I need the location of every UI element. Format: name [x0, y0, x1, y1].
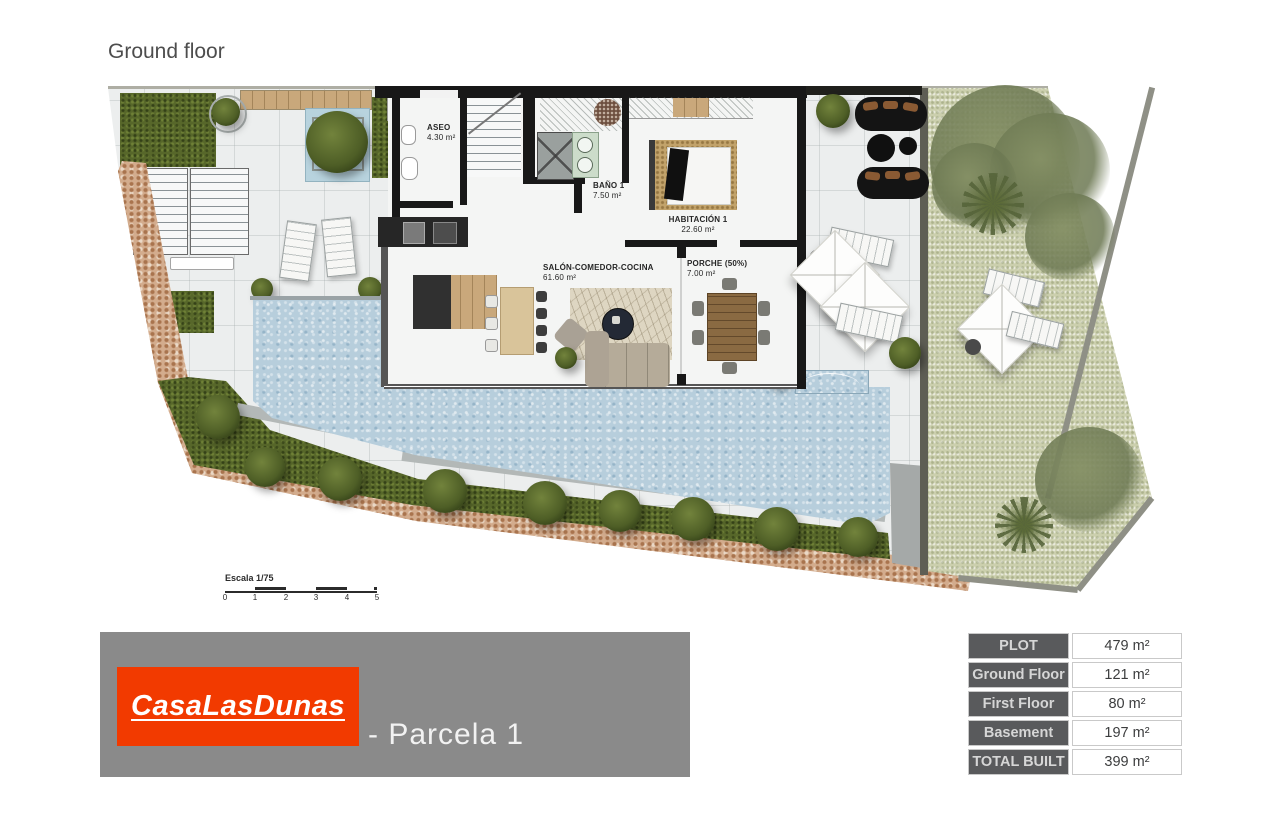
- room-name: PORCHE (50%): [687, 259, 747, 269]
- scale-bar-line: [225, 586, 377, 593]
- dining-chair: [536, 342, 547, 353]
- spa-jet-line: [800, 373, 860, 400]
- bedroom-wall-bottom: [625, 240, 717, 247]
- garden-wall-left: [920, 88, 928, 575]
- patio-sofa: [855, 97, 927, 131]
- dining-chair: [485, 317, 498, 330]
- indoor-plant: [555, 347, 577, 369]
- dining-chair: [536, 308, 547, 319]
- exterior-stairs-right-flight: [190, 168, 249, 255]
- room-label-porche: PORCHE (50%) 7.00 m²: [687, 259, 747, 279]
- room-label-aseo: ASEO 4.30 m²: [427, 123, 456, 143]
- hedge-bush: [423, 469, 467, 513]
- outdoor-chair: [758, 301, 770, 316]
- logo-text: CasaLasDunas: [131, 690, 345, 723]
- room-name: BAÑO 1: [593, 181, 624, 191]
- wardrobe-cabinet: [673, 98, 709, 117]
- table-row-label: First Floor: [968, 691, 1069, 717]
- hedge-bush: [671, 497, 715, 541]
- hedge-bush: [838, 517, 878, 557]
- house-wall-left-lower: [381, 247, 388, 387]
- shower: [537, 132, 574, 180]
- outdoor-table: [707, 293, 757, 361]
- aseo-wall-right: [460, 97, 467, 205]
- garden-side-table: [965, 339, 981, 355]
- room-name: ASEO: [427, 123, 456, 133]
- patio-bush: [816, 94, 850, 128]
- pool-coping: [250, 296, 386, 300]
- porch-column: [677, 374, 686, 385]
- table-row-value: 399 m²: [1072, 749, 1182, 775]
- garden-palm: [962, 173, 1024, 235]
- hedge-bush: [196, 395, 240, 439]
- bedroom-wall-bottom: [740, 240, 804, 247]
- aseo-toilet: [401, 157, 418, 180]
- kitchen-sink: [403, 222, 425, 244]
- dining-chair: [536, 291, 547, 302]
- aseo-wall-bottom: [398, 201, 453, 208]
- areas-table: PLOT 479 m² Ground Floor 121 m² First Fl…: [968, 633, 1182, 775]
- planter-tree: [306, 111, 368, 173]
- outdoor-chair: [692, 301, 704, 316]
- coffee-table-decor: [612, 316, 620, 324]
- floor-plan: ASEO 4.30 m² BAÑO 1 7.50 m² HABITACIÓN 1…: [100, 85, 1185, 615]
- scale-tick: 1: [250, 593, 260, 602]
- scale-tick: 0: [220, 593, 230, 602]
- garden-grass-tuft: [995, 497, 1053, 553]
- interior-stairs: [467, 99, 521, 177]
- outdoor-chair: [758, 330, 770, 345]
- side-garden-strip: [120, 93, 216, 167]
- logo: CasaLasDunas: [117, 667, 359, 746]
- room-label-bano: BAÑO 1 7.50 m²: [593, 181, 624, 201]
- page-title: Ground floor: [108, 40, 225, 64]
- vanity-sink: [577, 157, 593, 173]
- brand-panel: CasaLasDunas - Parcela 1: [100, 632, 690, 777]
- dining-chair: [536, 325, 547, 336]
- table-row-label: PLOT: [968, 633, 1069, 659]
- scale-label: Escala 1/75: [225, 573, 274, 583]
- hedge-bush: [318, 457, 362, 501]
- room-name: HABITACIÓN 1: [648, 215, 748, 225]
- aseo-sink: [401, 125, 416, 145]
- parcel-label: - Parcela 1: [368, 718, 524, 752]
- scale-tick: 3: [311, 593, 321, 602]
- bedroom-wall-left: [622, 97, 629, 183]
- outdoor-chair: [692, 330, 704, 345]
- house-wall-left-upper: [392, 90, 400, 217]
- island-appliance: [413, 275, 451, 329]
- kitchen-hob: [433, 222, 457, 244]
- hedge-bush: [523, 481, 567, 525]
- room-label-salon: SALÓN-COMEDOR-COCINA 61.60 m²: [543, 263, 654, 283]
- house-wall-right: [797, 86, 806, 389]
- patio-bush: [889, 337, 921, 369]
- hedge-bush: [245, 447, 285, 487]
- table-row-value: 479 m²: [1072, 633, 1182, 659]
- room-area: 7.00 m²: [687, 269, 747, 279]
- dining-chair: [485, 295, 498, 308]
- vanity-sink: [577, 137, 593, 153]
- bed-headboard: [649, 140, 655, 210]
- bath-wall-stub: [574, 177, 582, 213]
- small-tree: [212, 98, 240, 126]
- patio-wall-top: [805, 86, 922, 95]
- porch-divider: [680, 258, 682, 374]
- outdoor-chair: [722, 278, 737, 290]
- hedge-bush: [599, 490, 641, 532]
- room-area: 4.30 m²: [427, 133, 456, 143]
- garden-tree: [1025, 193, 1115, 281]
- scale-bar: Escala 1/75 0 1 2 3 4 5: [225, 573, 385, 603]
- table-row-value: 80 m²: [1072, 691, 1182, 717]
- patio-pouf: [899, 137, 917, 155]
- room-name: SALÓN-COMEDOR-COCINA: [543, 263, 654, 273]
- sun-lounger: [321, 217, 357, 278]
- room-area: 22.60 m²: [648, 225, 748, 235]
- table-row-value: 197 m²: [1072, 720, 1182, 746]
- round-rug: [594, 99, 621, 126]
- scale-tick: 4: [342, 593, 352, 602]
- table-row-label: Basement: [968, 720, 1069, 746]
- scale-tick: 2: [281, 593, 291, 602]
- sofa-chaise: [585, 331, 609, 387]
- room-area: 61.60 m²: [543, 273, 654, 283]
- scale-ticks: 0 1 2 3 4 5: [225, 593, 387, 603]
- table-row-label: TOTAL BUILT: [968, 749, 1069, 775]
- entry-deck: [240, 90, 372, 110]
- patio-sofa: [857, 167, 929, 199]
- room-area: 7.50 m²: [593, 191, 624, 201]
- hedge-bush: [755, 507, 799, 551]
- table-row-label: Ground Floor: [968, 662, 1069, 688]
- patio-pouf: [867, 134, 895, 162]
- room-label-habitacion: HABITACIÓN 1 22.60 m²: [648, 215, 748, 235]
- table-row-value: 121 m²: [1072, 662, 1182, 688]
- dining-table: [500, 287, 534, 355]
- shaft-wall: [523, 88, 535, 182]
- dining-chair: [485, 339, 498, 352]
- exterior-bench: [170, 257, 234, 270]
- outdoor-chair: [722, 362, 737, 374]
- porch-column: [677, 247, 686, 258]
- scale-tick: 5: [372, 593, 382, 602]
- entrance-door-gap: [420, 90, 458, 98]
